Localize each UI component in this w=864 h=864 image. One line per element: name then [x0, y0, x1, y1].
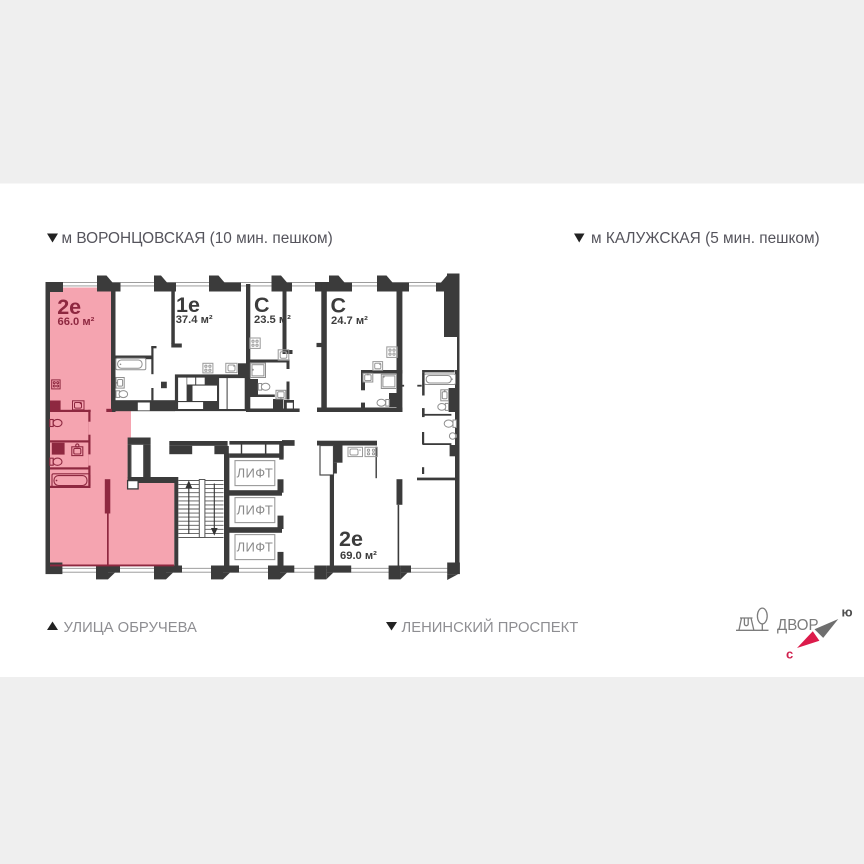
svg-text:69.0 м²: 69.0 м²	[340, 550, 377, 562]
svg-text:ДВОР: ДВОР	[777, 617, 819, 634]
svg-text:37.4 м²: 37.4 м²	[176, 314, 213, 326]
svg-text:С: С	[331, 294, 347, 318]
svg-text:м КАЛУЖСКАЯ (5 мин. пешком): м КАЛУЖСКАЯ (5 мин. пешком)	[591, 230, 820, 247]
svg-text:с: с	[786, 647, 793, 662]
svg-text:ЛИФТ: ЛИФТ	[237, 466, 274, 481]
svg-text:24.7 м²: 24.7 м²	[331, 315, 368, 327]
svg-text:ю: ю	[842, 605, 853, 620]
svg-text:23.5 м²: 23.5 м²	[254, 314, 291, 326]
svg-text:66.0 м²: 66.0 м²	[58, 316, 95, 328]
svg-text:УЛИЦА ОБРУЧЕВА: УЛИЦА ОБРУЧЕВА	[64, 620, 197, 636]
svg-text:ЛИФТ: ЛИФТ	[237, 503, 274, 518]
svg-text:ЛЕНИНСКИЙ ПРОСПЕКТ: ЛЕНИНСКИЙ ПРОСПЕКТ	[402, 618, 579, 636]
svg-text:м ВОРОНЦОВСКАЯ (10 мин. пешко: м ВОРОНЦОВСКАЯ (10 мин. пешком)	[62, 230, 333, 247]
svg-text:2е: 2е	[339, 527, 363, 551]
svg-text:ЛИФТ: ЛИФТ	[237, 540, 274, 555]
